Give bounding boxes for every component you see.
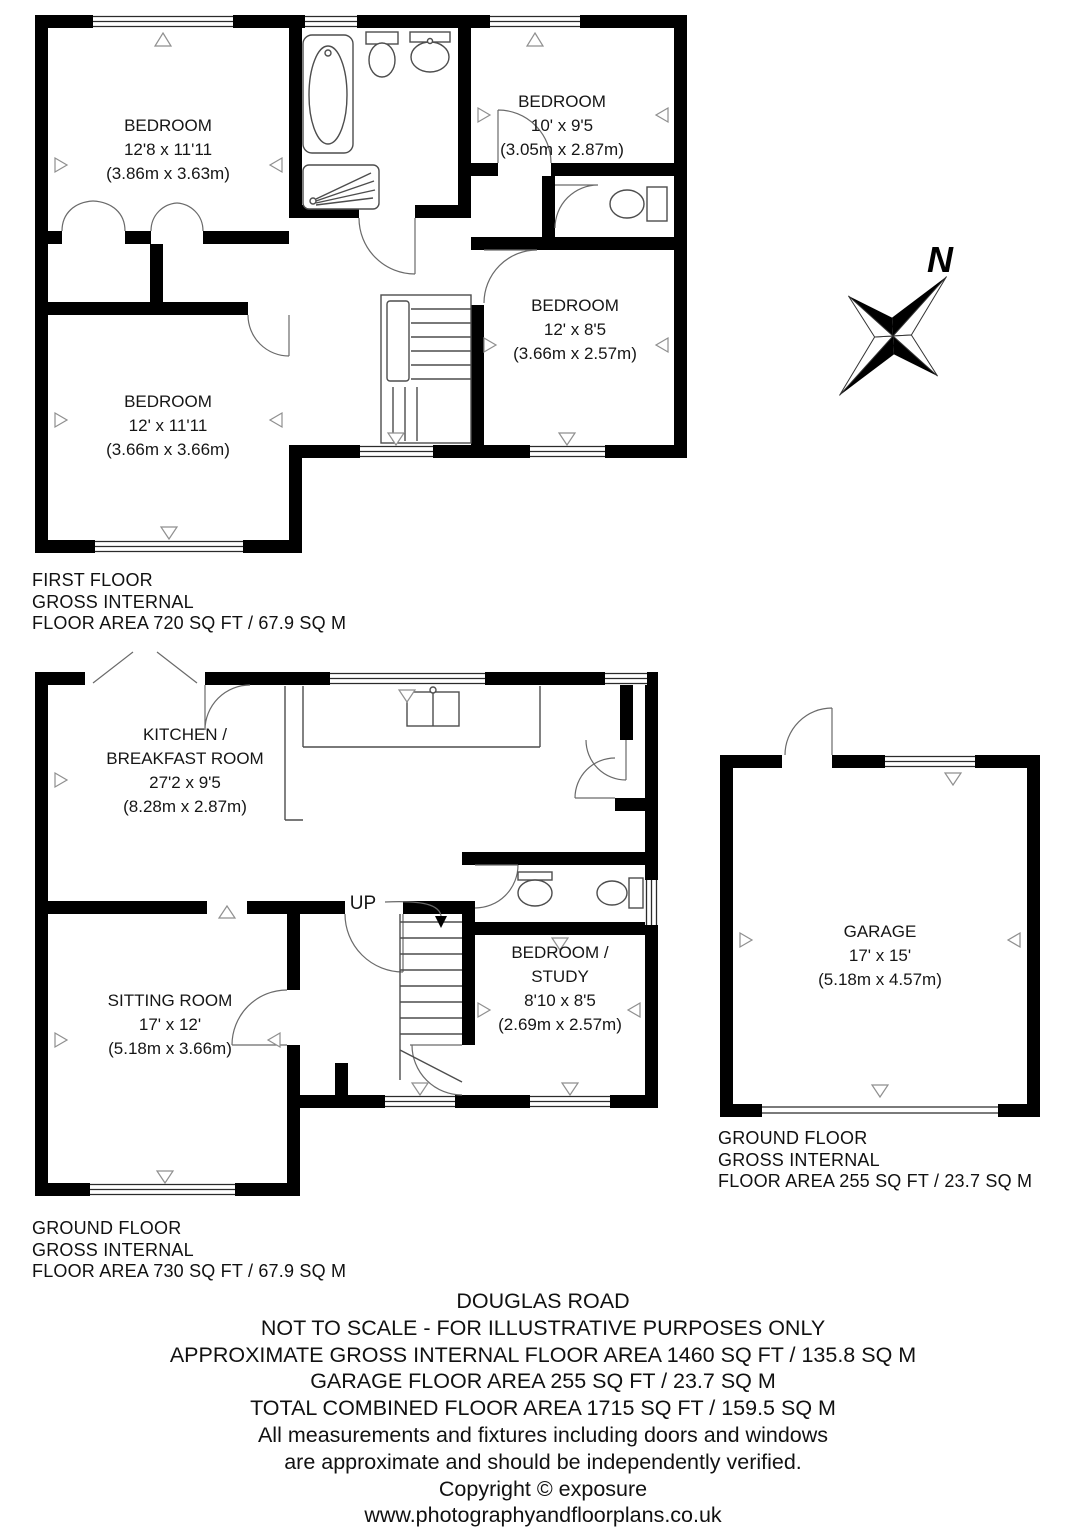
kitchen-counter — [285, 686, 540, 820]
footer-line: APPROXIMATE GROSS INTERNAL FLOOR AREA 14… — [0, 1342, 1086, 1369]
ground-floor-staircase: UP — [350, 893, 462, 1082]
room-label: (3.66m x 2.57m) — [513, 344, 637, 363]
area-label-line: FIRST FLOOR — [32, 570, 346, 592]
room-label: 17' x 15' — [849, 946, 911, 965]
window — [305, 15, 357, 28]
first-floor-room-labels: BEDROOM 12'8 x 11'11 (3.86m x 3.63m) BED… — [106, 92, 637, 459]
area-label-line: GROSS INTERNAL — [718, 1150, 1032, 1172]
room-label: 12' x 11'11 — [129, 416, 208, 435]
room-label: 12' x 8'5 — [544, 320, 606, 339]
toilet — [366, 32, 398, 77]
window — [360, 445, 433, 458]
ground-floor-area-label: GROUND FLOOR GROSS INTERNAL FLOOR AREA 7… — [32, 1218, 346, 1283]
garage-area-label: GROUND FLOOR GROSS INTERNAL FLOOR AREA 2… — [718, 1128, 1032, 1193]
room-label: (3.86m x 3.63m) — [106, 164, 230, 183]
room-label: (5.18m x 3.66m) — [108, 1039, 232, 1058]
window — [93, 15, 233, 28]
room-label: (5.18m x 4.57m) — [818, 970, 942, 989]
floorplan-page: BEDROOM 12'8 x 11'11 (3.86m x 3.63m) BED… — [0, 0, 1086, 1536]
garage-door-opening — [762, 1107, 998, 1113]
room-label: BEDROOM — [124, 392, 212, 411]
room-label: STUDY — [531, 967, 589, 986]
window — [645, 880, 658, 925]
north-arrow — [815, 236, 991, 413]
room-label: BEDROOM / — [511, 943, 609, 962]
window — [95, 540, 243, 553]
area-label-line: GROUND FLOOR — [32, 1218, 346, 1240]
hand-basin — [518, 872, 552, 906]
area-label-line: GROUND FLOOR — [718, 1128, 1032, 1150]
footer-line: TOTAL COMBINED FLOOR AREA 1715 SQ FT / 1… — [0, 1395, 1086, 1422]
stairs-up-label: UP — [350, 893, 376, 914]
room-label: 12'8 x 11'11 — [124, 140, 212, 159]
room-label: BEDROOM — [518, 92, 606, 111]
north-label: N — [927, 239, 954, 280]
garage-room-label: GARAGE 17' x 15' (5.18m x 4.57m) — [818, 922, 942, 989]
compass-rose: N — [815, 228, 1000, 413]
wc-toilet — [610, 187, 667, 221]
room-label: GARAGE — [844, 922, 917, 941]
footer-line: Copyright © exposure — [0, 1476, 1086, 1503]
garage-windows — [885, 755, 975, 768]
room-label: (3.66m x 3.66m) — [106, 440, 230, 459]
room-label: BREAKFAST ROOM — [106, 749, 263, 768]
area-label-line: GROSS INTERNAL — [32, 592, 346, 614]
bathtub — [303, 35, 353, 153]
window — [530, 1095, 610, 1108]
room-label: 10' x 9'5 — [531, 116, 593, 135]
room-label: 17' x 12' — [139, 1015, 201, 1034]
room-label: BEDROOM — [124, 116, 212, 135]
footer-line: All measurements and fixtures including … — [0, 1422, 1086, 1449]
room-label: BEDROOM — [531, 296, 619, 315]
room-label: KITCHEN / — [143, 725, 227, 744]
window — [90, 1183, 235, 1196]
footer-line: NOT TO SCALE - FOR ILLUSTRATIVE PURPOSES… — [0, 1315, 1086, 1342]
ground-floor-plan: UP KITCHEN / BREAKFAST ROOM 27'2 x 9'5 (… — [35, 650, 675, 1210]
window — [530, 445, 605, 458]
shower — [303, 165, 379, 209]
garage-plan: GARAGE 17' x 15' (5.18m x 4.57m) — [720, 705, 1045, 1120]
property-title: DOUGLAS ROAD — [0, 1288, 1086, 1315]
window — [490, 15, 580, 28]
room-label: (2.69m x 2.57m) — [498, 1015, 622, 1034]
hand-basin — [410, 32, 450, 72]
area-label-line: FLOOR AREA 730 SQ FT / 67.9 SQ M — [32, 1261, 346, 1283]
room-label: (3.05m x 2.87m) — [500, 140, 624, 159]
bathroom-fixtures — [303, 32, 667, 221]
first-floor-plan: BEDROOM 12'8 x 11'11 (3.86m x 3.63m) BED… — [35, 15, 687, 567]
footer-website: www.photographyandfloorplans.co.uk — [0, 1502, 1086, 1529]
kitchen-sink — [407, 687, 459, 726]
room-label: 27'2 x 9'5 — [149, 773, 221, 792]
first-floor-area-label: FIRST FLOOR GROSS INTERNAL FLOOR AREA 72… — [32, 570, 346, 635]
room-label: (8.28m x 2.87m) — [123, 797, 247, 816]
footer-line: GARAGE FLOOR AREA 255 SQ FT / 23.7 SQ M — [0, 1368, 1086, 1395]
room-label: SITTING ROOM — [108, 991, 233, 1010]
window — [605, 672, 647, 685]
footer-line: are approximate and should be independen… — [0, 1449, 1086, 1476]
footer-disclaimer: DOUGLAS ROAD NOT TO SCALE - FOR ILLUSTRA… — [0, 1288, 1086, 1529]
first-floor-staircase — [381, 295, 471, 443]
area-label-line: GROSS INTERNAL — [32, 1240, 346, 1262]
window — [385, 1095, 455, 1108]
area-label-line: FLOOR AREA 720 SQ FT / 67.9 SQ M — [32, 613, 346, 635]
window — [330, 672, 485, 685]
garage-doors — [785, 708, 832, 755]
room-label: 8'10 x 8'5 — [524, 991, 596, 1010]
window — [885, 755, 975, 768]
area-label-line: FLOOR AREA 255 SQ FT / 23.7 SQ M — [718, 1171, 1032, 1193]
ground-bathroom-fixtures — [518, 872, 643, 908]
toilet — [597, 878, 643, 908]
